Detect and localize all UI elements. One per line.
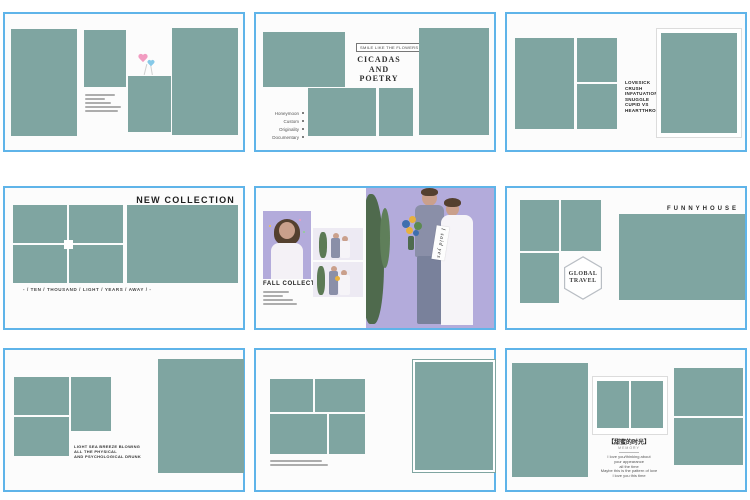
photo-slot[interactable] — [329, 414, 365, 454]
photo-slot[interactable] — [512, 363, 588, 477]
photo-slot[interactable] — [69, 245, 123, 283]
photo-slot[interactable] — [419, 28, 489, 135]
photo-slot[interactable] — [308, 88, 376, 136]
album-template-9[interactable]: 【甜蜜的时光】 MEMORY I love you/thinking about… — [505, 348, 747, 492]
album-template-3[interactable]: LOVESICKCRUSH INFATUATIONSNUGGLE CUPID V… — [505, 12, 747, 152]
photo-woman-portrait[interactable] — [263, 211, 311, 279]
micro-text-lines — [263, 289, 303, 307]
photo-grid-2x2 — [13, 205, 123, 283]
photo-slot[interactable] — [379, 88, 413, 136]
photo-slot[interactable] — [619, 214, 745, 300]
photo-slot[interactable] — [127, 205, 238, 283]
menu-item: Custom — [260, 118, 304, 126]
menu-item: Honeymoon — [260, 110, 304, 118]
photo-slot[interactable] — [520, 253, 559, 303]
spread-title: CICADAS AND POETRY — [348, 55, 410, 84]
album-template-5[interactable]: FALL COLLECTION — [254, 186, 496, 330]
album-template-2[interactable]: SMILE LIKE THE FLOWERS CICADAS AND POETR… — [254, 12, 496, 152]
album-template-8[interactable] — [254, 348, 496, 492]
photo-slot[interactable] — [315, 379, 365, 412]
framed-photo-pair — [592, 376, 668, 435]
category-menu: Honeymoon Custom Originality Documentary — [260, 110, 304, 142]
spread-header: FUNNYHOUSE — [667, 206, 739, 212]
photo-slot[interactable] — [263, 32, 345, 87]
photo-couple-large[interactable]: I said yes — [366, 188, 494, 328]
spread-caption: - / TEN / THOUSAND / LIGHT / YEARS / AWA… — [23, 287, 152, 292]
photo-slot[interactable] — [270, 379, 313, 412]
photo-slot[interactable] — [631, 381, 663, 428]
photo-slot[interactable] — [674, 368, 743, 416]
photo-couple-small-1[interactable] — [313, 228, 363, 260]
photo-slot[interactable] — [14, 377, 69, 415]
photo-slot[interactable] — [577, 84, 617, 129]
spread-header: NEW COLLECTION — [136, 195, 235, 205]
menu-item: Originality — [260, 126, 304, 134]
poem-text: I love you/thinking about your appearanc… — [592, 455, 666, 479]
photo-slot[interactable] — [14, 417, 69, 456]
album-template-6[interactable]: FUNNYHOUSE GLOBAL TRAVEL — [505, 186, 747, 330]
framed-photo-slot[interactable] — [412, 359, 496, 473]
album-template-7[interactable]: LIGHT SEA BREEZE BLOWING ALL THE PHYSICA… — [3, 348, 245, 492]
photo-slot[interactable] — [270, 414, 327, 454]
heart-balloon-blue-icon — [147, 60, 155, 67]
photo-couple-small-2[interactable] — [313, 262, 363, 297]
title-badge: SMILE LIKE THE FLOWERS — [356, 43, 422, 52]
photo-slot[interactable] — [128, 76, 171, 132]
photo-slot[interactable] — [84, 30, 126, 87]
hexagon-badge: GLOBAL TRAVEL — [563, 256, 603, 300]
template-row-1: SMILE LIKE THE FLOWERS CICADAS AND POETR… — [0, 12, 750, 152]
photo-slot[interactable] — [577, 38, 617, 82]
photo-slot[interactable] — [172, 28, 238, 135]
photo-slot[interactable] — [515, 38, 574, 129]
center-square-marker — [64, 240, 73, 249]
photo-slot[interactable] — [561, 200, 601, 251]
framed-photo-slot[interactable] — [656, 28, 742, 138]
photo-slot[interactable] — [13, 205, 67, 243]
template-row-2: NEW COLLECTION - / TEN / THOUSAND / LIGH… — [0, 186, 750, 330]
photo-slot[interactable] — [69, 205, 123, 243]
spread-caption: LIGHT SEA BREEZE BLOWING ALL THE PHYSICA… — [74, 444, 141, 459]
spread-subtitle: MEMORY — [592, 446, 666, 450]
word-list: LOVESICKCRUSH INFATUATIONSNUGGLE CUPID V… — [625, 80, 660, 114]
menu-item: Documentary — [260, 134, 304, 142]
photo-slot[interactable] — [674, 418, 743, 465]
micro-text-lines — [270, 458, 330, 468]
spread-title: 【甜蜜的时光】 — [592, 437, 666, 446]
template-grid: SMILE LIKE THE FLOWERS CICADAS AND POETR… — [0, 0, 750, 500]
divider — [619, 452, 639, 453]
micro-text-lines — [85, 92, 127, 114]
photo-slot[interactable] — [71, 377, 111, 431]
album-template-1[interactable] — [3, 12, 245, 152]
photo-slot[interactable] — [11, 29, 77, 136]
photo-slot[interactable] — [158, 359, 244, 473]
photo-slot[interactable] — [520, 200, 559, 251]
photo-slot[interactable] — [597, 381, 629, 428]
template-row-3: LIGHT SEA BREEZE BLOWING ALL THE PHYSICA… — [0, 348, 750, 492]
album-template-4[interactable]: NEW COLLECTION - / TEN / THOUSAND / LIGH… — [3, 186, 245, 330]
photo-slot[interactable] — [13, 245, 67, 283]
